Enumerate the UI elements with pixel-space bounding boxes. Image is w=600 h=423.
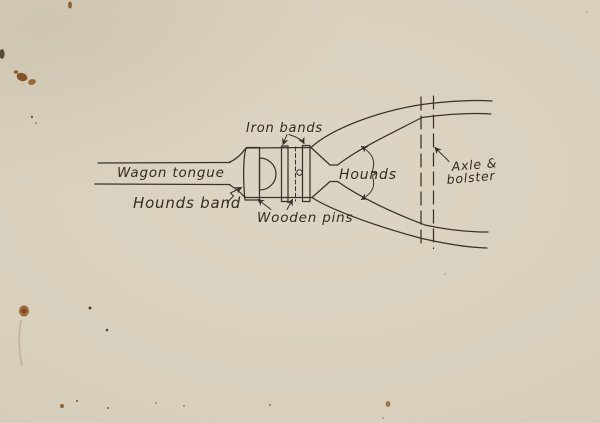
- iron-band-2: [303, 146, 311, 202]
- label-wooden-pins: Wooden pins: [257, 210, 353, 226]
- axle-bolster-arrow: [435, 148, 449, 162]
- stain-spot: [269, 404, 271, 406]
- label-hounds-band: Hounds band: [133, 194, 241, 212]
- stain-spot: [31, 116, 33, 118]
- iron-band-1: [282, 146, 289, 202]
- stain-spot: [382, 417, 384, 419]
- stain-spot: [68, 2, 72, 9]
- stain-spot: [0, 49, 5, 59]
- label-wagon-tongue: Wagon tongue: [117, 165, 225, 181]
- scanned-drawing-page: Iron bands Wagon tongue Hounds band Wood…: [0, 0, 600, 423]
- stain-spot: [60, 404, 64, 408]
- wagon-tongue-top-line: [98, 163, 230, 164]
- stain-spot: [35, 122, 37, 124]
- stain-spot: [27, 78, 36, 85]
- stain-spot: [76, 400, 78, 402]
- stain-spot: [155, 402, 157, 404]
- hound-top-outer-line: [311, 101, 492, 148]
- hound-bottom-inner-line: [338, 182, 489, 233]
- label-axle-bolster-line2: bolster: [446, 168, 496, 187]
- hounds-band-cap: [244, 148, 260, 201]
- neck-top-edge: [311, 148, 338, 166]
- stain-spot: [14, 70, 18, 73]
- wagon-hounds-diagram: Iron bands Wagon tongue Hounds band Wood…: [0, 0, 600, 423]
- stain-spot: [107, 407, 109, 409]
- stain-spot: [89, 307, 92, 310]
- wagon-tongue-bottom-line: [95, 184, 230, 185]
- stain-streak: [19, 320, 22, 366]
- tongue-cap-shoulder-top: [229, 149, 246, 163]
- stain-spot: [183, 405, 185, 407]
- stain-spot: [22, 309, 27, 314]
- stain-spot: [386, 401, 391, 407]
- wooden-pins-arrow-left: [258, 200, 271, 210]
- stain-spot: [106, 329, 109, 332]
- stain-spot: [586, 11, 588, 13]
- label-hounds: Hounds: [339, 167, 397, 183]
- label-iron-bands: Iron bands: [246, 121, 323, 136]
- drawing-labels: Iron bands Wagon tongue Hounds band Wood…: [117, 121, 498, 226]
- stain-spot: [444, 273, 446, 275]
- hounds-band-cap-bulge: [260, 158, 277, 190]
- neck-bottom-edge: [312, 182, 338, 198]
- wooden-pin-hole: [297, 170, 303, 176]
- iron-bands-arrow-left: [283, 135, 287, 145]
- block-top-edge: [246, 148, 311, 149]
